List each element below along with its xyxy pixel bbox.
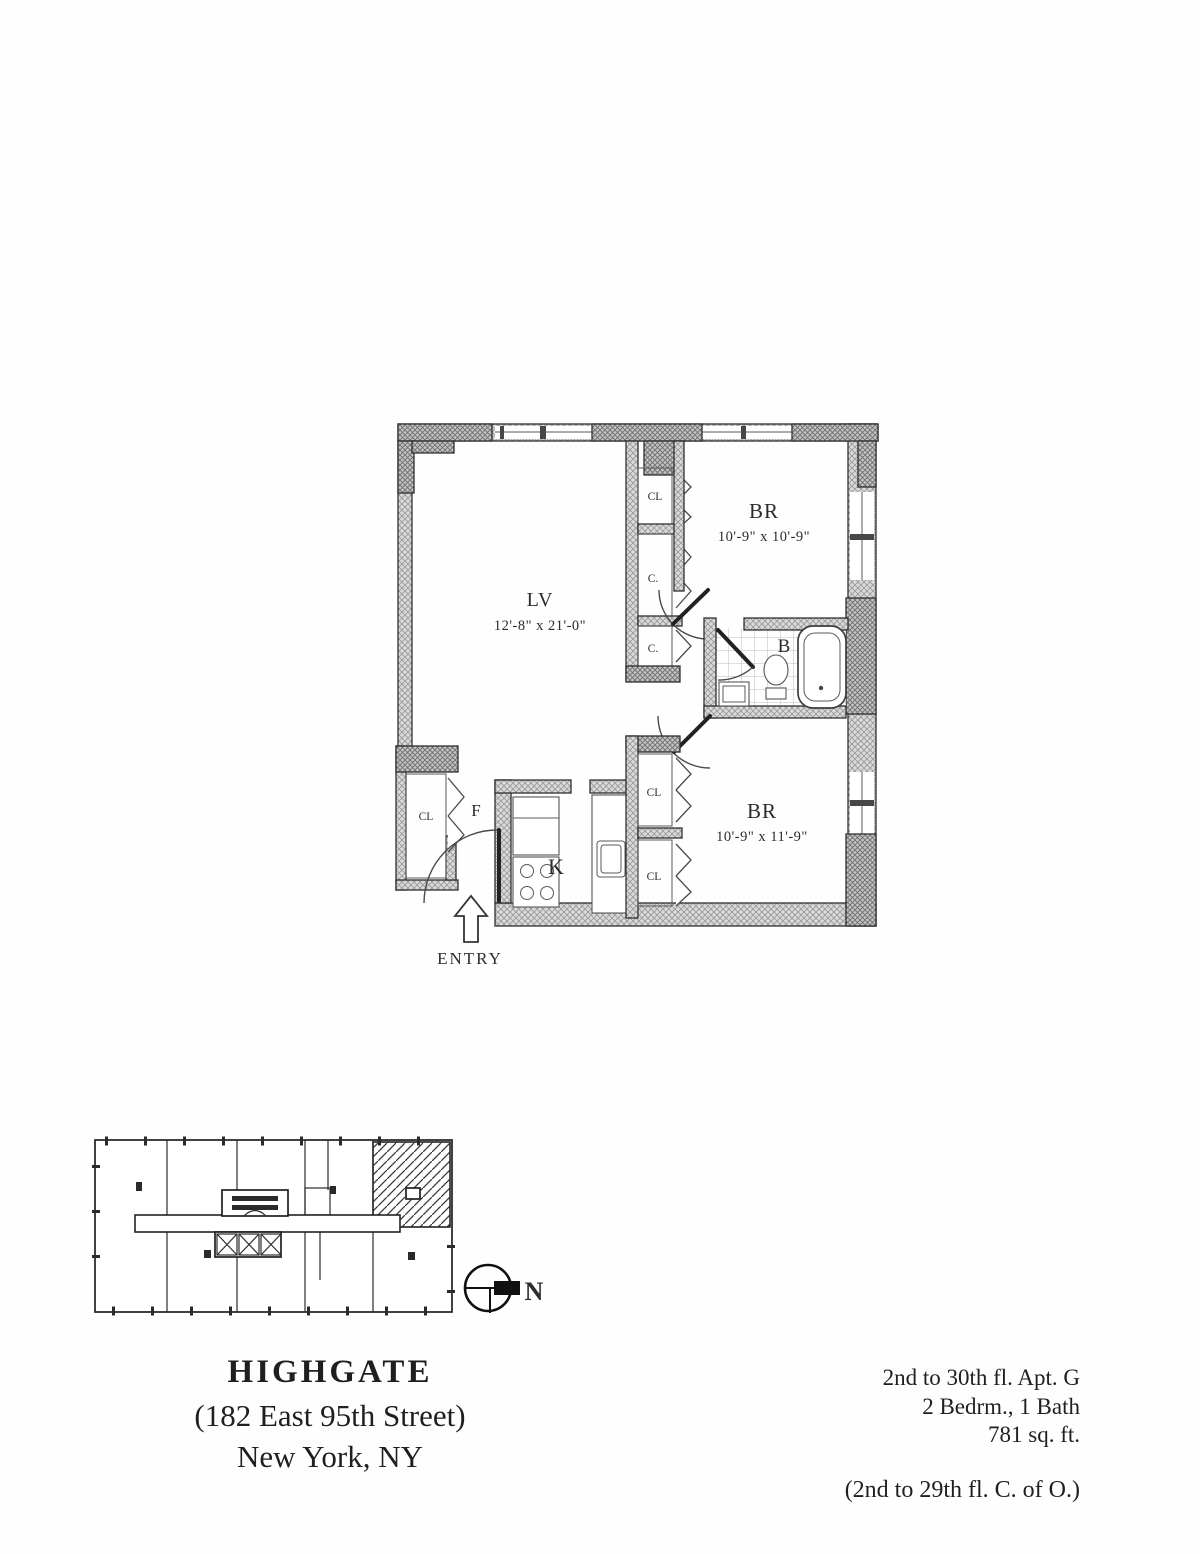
bedroom-closet-1-label: CL	[647, 787, 662, 799]
floor-plan: CL K	[396, 424, 878, 968]
key-plan-corridor	[135, 1215, 400, 1232]
window-top-living	[495, 426, 592, 439]
compass-icon: N	[464, 1265, 544, 1313]
window-right-bedroom-bottom	[850, 772, 874, 836]
bedroom-bottom-label: BR	[747, 799, 777, 823]
kitchen: K	[495, 780, 632, 913]
unit-certificate-line: (2nd to 29th fl. C. of O.)	[720, 1476, 1080, 1506]
entry: ENTRY	[437, 896, 503, 968]
bedroom-closets: CL CL	[626, 736, 691, 918]
bedroom-bottom: CL CL BR 10'-9" x 11'-9"	[626, 716, 808, 918]
unit-rooms-line: 2 Bedrm., 1 Bath	[720, 1393, 1080, 1422]
hall-closet-1-label: CL	[648, 491, 663, 503]
hall-closet-2-label: C.	[648, 573, 659, 585]
bedroom-top-dims: 10'-9" x 10'-9"	[718, 529, 810, 545]
title-block: HIGHGATE (182 East 95th Street) New York…	[140, 1350, 520, 1478]
bathroom-label: B	[778, 636, 791, 657]
kitchen-sink-counter	[592, 795, 630, 913]
building-name: HIGHGATE	[140, 1350, 520, 1395]
building-address: (182 East 95th Street)	[140, 1395, 520, 1437]
window-right-bedroom-top	[850, 492, 874, 580]
hall-closet-3-label: C.	[648, 643, 659, 655]
bedroom-bottom-dims: 10'-9" x 11'-9"	[716, 829, 808, 845]
floorplan-drawing: CL K	[0, 0, 1200, 1554]
unit-info-block: 2nd to 30th fl. Apt. G 2 Bedrm., 1 Bath …	[720, 1364, 1080, 1505]
entry-label: ENTRY	[437, 949, 503, 968]
bedroom-closet-2-label: CL	[647, 871, 662, 883]
bath-sink	[719, 682, 749, 706]
foyer-closet: CL	[396, 746, 464, 890]
unit-floors-line: 2nd to 30th fl. Apt. G	[720, 1364, 1080, 1393]
living-room-dims: 12'-8" x 21'-0"	[494, 618, 586, 634]
bathroom: B	[704, 618, 848, 718]
living-room-label: LV	[527, 589, 554, 611]
foyer-label: F	[471, 801, 480, 820]
unit-area-line: 781 sq. ft.	[720, 1421, 1080, 1450]
key-plan-elevators	[215, 1232, 281, 1257]
toilet	[764, 655, 788, 699]
building-city: New York, NY	[140, 1436, 520, 1478]
scanned-floorplan-page: CL K	[0, 0, 1200, 1554]
kitchen-label: K	[548, 854, 564, 879]
compass-north-label: N	[525, 1277, 544, 1306]
living-room: LV 12'-8" x 21'-0"	[494, 589, 586, 634]
key-plan-stairs	[222, 1190, 288, 1216]
foyer-closet-label: CL	[419, 811, 434, 823]
bedroom-top-label: BR	[749, 499, 779, 523]
bathtub	[798, 626, 846, 708]
key-plan	[95, 1140, 452, 1312]
window-top-bedroom	[700, 426, 792, 439]
bedroom-top: BR 10'-9" x 10'-9"	[659, 441, 810, 639]
entry-arrow-icon	[455, 896, 487, 942]
refrigerator	[513, 797, 559, 855]
